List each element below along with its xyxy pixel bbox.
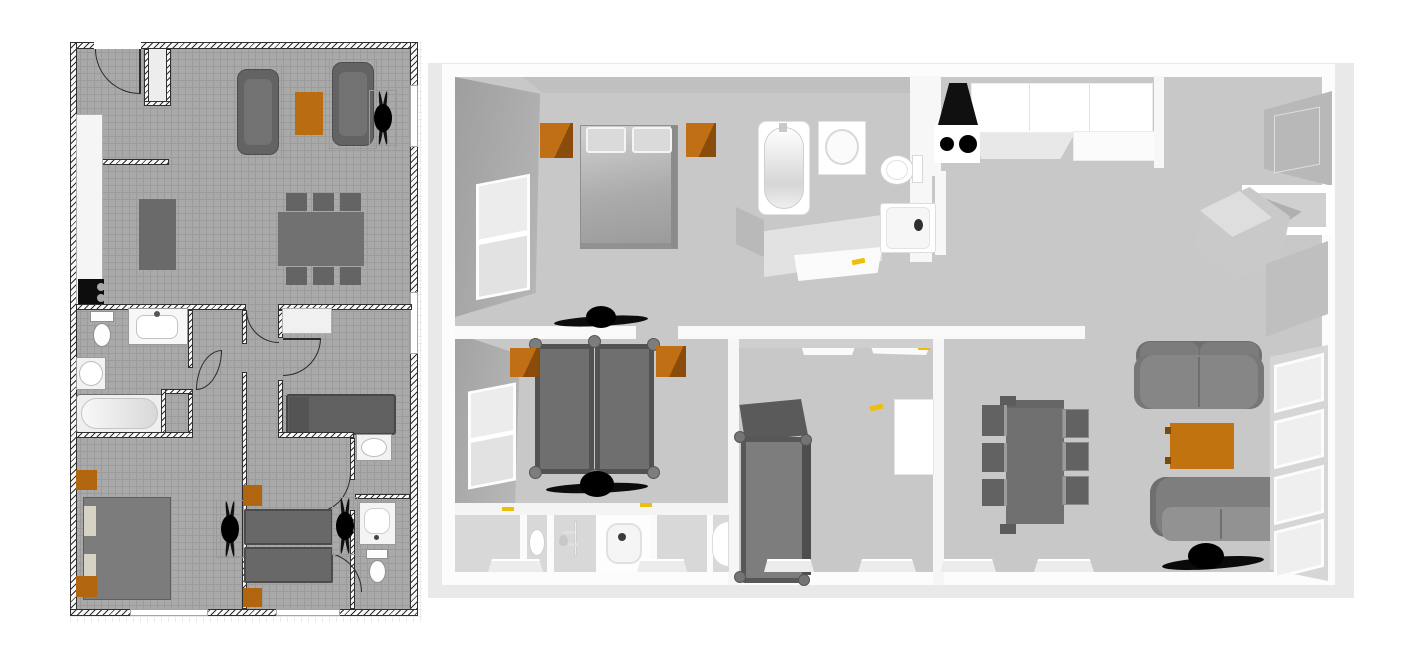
shower-3d-drain: [914, 219, 923, 231]
ceiling-fan-2d-twin-hub[interactable]: [336, 512, 354, 540]
sofa-3d-bottom-seat: [1162, 507, 1284, 541]
nightstand-3d-master[interactable]: [540, 123, 573, 158]
floor-plan-2d-view[interactable]: [70, 42, 422, 622]
wall-2d-room3-bottom: [278, 432, 354, 438]
ceiling-fan-2d-living-hub[interactable]: [374, 104, 392, 132]
kitchen-counter-3d-right[interactable]: [1073, 131, 1155, 161]
wall-3d-kitchen-entry: [1154, 76, 1164, 168]
window-2d-right-living: [410, 85, 418, 147]
corner-sink-basin-2d: [361, 438, 387, 457]
wall-3d-bed2-ledge: [455, 503, 729, 515]
ceiling-fan-2d-master-hub[interactable]: [221, 515, 239, 543]
pedestal-sink-basin-2d: [79, 361, 103, 386]
bed-3d-single-rail: [802, 443, 811, 575]
hall-doorway-gap: [636, 326, 678, 339]
dining-table-3d-cap: [1000, 524, 1016, 534]
bath3-sink-basin-2d: [364, 508, 390, 534]
coffee-table-3d-leg: [1165, 457, 1171, 464]
twin-bed-3d[interactable]: [535, 344, 594, 474]
stove-3d-burner: [940, 137, 954, 151]
dining-chair-2d[interactable]: [313, 193, 334, 211]
toilet-2d-bath3-bowl[interactable]: [369, 560, 386, 583]
toilet-2d-bath3-tank[interactable]: [366, 549, 388, 559]
shower-fixture-3d-bar: [568, 543, 578, 546]
window-3d-master: [476, 174, 530, 300]
wall-3d-face-master-top: [523, 77, 913, 93]
window-3d-bottom: [1034, 559, 1094, 572]
entry-door-3d-outline[interactable]: [1274, 107, 1320, 174]
bathroom-sink-3d-basin: [825, 129, 859, 165]
window-3d-bottom: [764, 559, 814, 572]
ceiling-fan-3d-living-hub: [1188, 543, 1224, 569]
stove-2d-burner-notch: [97, 294, 105, 302]
wall-2d-room3-left-lower: [278, 380, 283, 436]
ceiling-fan-3d-twin-hub: [580, 471, 614, 497]
twin-bed-3d-post: [647, 466, 660, 479]
dining-chair-2d[interactable]: [340, 193, 361, 211]
coffee-table-2d[interactable]: [295, 92, 323, 135]
kitchen-island-2d[interactable]: [139, 199, 176, 270]
window-3d-bottom: [488, 559, 543, 572]
toilet-2d-main-bowl[interactable]: [93, 323, 111, 347]
closet-2d-interior: [149, 49, 166, 101]
wall-3d-outer-top: [442, 64, 1335, 77]
floor-plan-3d-view[interactable]: [428, 63, 1354, 598]
kitchen-counter-3d-main[interactable]: [971, 83, 1153, 133]
wall-3d-outer-bottom: [442, 572, 1335, 585]
bath3-sink-faucet-2d: [374, 535, 379, 540]
bath2-sink-basin-3d: [606, 523, 642, 564]
wall-2d-bath-vert-upper: [188, 310, 193, 368]
nightstand-3d-twin[interactable]: [510, 348, 539, 377]
window-3d-bottom: [940, 559, 996, 572]
bathtub-2d-basin: [81, 398, 158, 429]
bed-3d-single-post: [800, 434, 812, 446]
bed-3d-single-post: [798, 574, 810, 586]
sofa-3d-bottom-split: [1220, 509, 1222, 539]
twin-bed-3d[interactable]: [595, 344, 654, 474]
dining-chair-2d[interactable]: [313, 267, 334, 285]
master-bed-2d-pillow: [84, 506, 96, 536]
twin-bed-2d[interactable]: [244, 509, 333, 545]
closet-2d-wall-bottom: [144, 101, 171, 106]
coffee-table-3d-leg: [1165, 427, 1171, 434]
coffee-table-3d[interactable]: [1170, 423, 1234, 469]
wall-2d-outer-bottom: [70, 609, 418, 616]
bed-3d-single-post: [734, 571, 746, 583]
shower-fixture-3d-head: [559, 535, 568, 546]
nightstand-2d-twin[interactable]: [243, 588, 262, 607]
dining-chair-2d[interactable]: [340, 267, 361, 285]
entry-door-opening-2d: [94, 42, 141, 49]
ledge-handle: [502, 507, 514, 511]
nightstand-2d-master[interactable]: [76, 576, 97, 597]
bed-3d-single-headboard[interactable]: [738, 399, 808, 441]
nightstand-3d-twin[interactable]: [656, 346, 686, 377]
window-2d-bottom-left: [130, 609, 208, 616]
dining-chair-2d[interactable]: [286, 193, 307, 211]
kitchen-counter-3d-seam: [1089, 84, 1090, 131]
ledge-handle: [640, 503, 652, 507]
wall-2d-bath-vert-lower: [188, 394, 193, 434]
stove-3d-burner: [959, 135, 977, 153]
toilet-3d-main-tank: [912, 155, 923, 183]
dining-chair-2d[interactable]: [286, 267, 307, 285]
window-2d-right-mid: [410, 292, 418, 354]
kitchen-counter-3d-front: [971, 133, 1075, 159]
sofa-2d-right-seat: [339, 72, 367, 136]
sofa-2d-left-seat: [244, 79, 272, 145]
toilet-3d-main-seat: [886, 160, 908, 180]
bathtub-3d-2-partial: [712, 521, 729, 567]
stove-2d-burner-notch: [97, 283, 105, 291]
shower-fixture-3d-pole[interactable]: [574, 521, 577, 556]
wall-3d-bed3-top-face: [739, 339, 933, 348]
dining-chair-3d-left[interactable]: [982, 443, 1007, 472]
bath2-sink-faucet-3d: [618, 533, 626, 541]
twin-bed-3d-post: [588, 335, 601, 348]
dresser-3d-bed3[interactable]: [894, 399, 934, 475]
entry-door-leaf-2d: [139, 49, 141, 94]
window-3d-bottom: [637, 559, 687, 572]
toilet-2d-main-tank[interactable]: [90, 311, 114, 322]
wall-2d-bath-alcove-v: [161, 389, 166, 434]
bed-3d-master-pillow: [586, 127, 626, 153]
nightstand-3d-master[interactable]: [686, 123, 716, 157]
wall-2d-bath-bottom: [76, 432, 193, 438]
wall-3d-bed2-right: [728, 339, 739, 585]
nightstand-2d-master[interactable]: [76, 470, 97, 490]
nightstand-2d-twin[interactable]: [243, 485, 262, 506]
bathroom-sink-faucet-2d: [154, 311, 160, 317]
single-bed-2d-pillow: [289, 397, 309, 432]
window-2d-bottom-mid: [276, 609, 340, 616]
wall-3d-bed3-right: [933, 339, 944, 585]
kitchen-counter-3d-seam: [1029, 84, 1030, 131]
bed-3d-single-post: [734, 431, 746, 443]
twin-bed-3d-post: [529, 466, 542, 479]
wall-2d-hall-vert-upper: [242, 310, 247, 344]
bed-3d-master-pillow: [632, 127, 672, 153]
bath-strip-wall: [547, 515, 554, 572]
dining-chair-3d-left[interactable]: [982, 405, 1007, 436]
dining-chair-3d-right[interactable]: [1062, 409, 1089, 438]
window-3d-bottom: [858, 559, 916, 572]
toilet-3d-2[interactable]: [529, 529, 545, 556]
sofa-3d-top-split: [1198, 357, 1200, 407]
dining-table-3d[interactable]: [1006, 400, 1064, 524]
dining-table-2d[interactable]: [278, 212, 364, 266]
twin-bed-2d[interactable]: [244, 547, 333, 583]
wall-2d-bath3-divider: [355, 494, 410, 499]
ceiling-fan-3d-master-hub: [586, 306, 616, 328]
dresser-2d-room3[interactable]: [282, 308, 332, 334]
shower-fixture-3d-arm: [563, 531, 575, 534]
wall-3d-hall: [455, 326, 1085, 339]
closet-2d-wall-right: [166, 49, 171, 106]
bathtub-3d-basin: [764, 127, 804, 209]
dining-chair-3d-left[interactable]: [982, 479, 1007, 506]
window-3d-bed2: [468, 382, 516, 489]
wall-3d-bath-inner: [935, 171, 946, 255]
dining-chair-3d-right[interactable]: [1062, 476, 1089, 505]
dining-chair-3d-right[interactable]: [1062, 442, 1089, 471]
kitchen-counter-2d[interactable]: [76, 114, 103, 306]
bathtub-3d-faucet: [779, 123, 787, 132]
wall-3d-outer-left: [442, 64, 455, 585]
bathroom-sink-basin-2d: [136, 315, 178, 339]
shower-3d-pan: [886, 207, 930, 249]
